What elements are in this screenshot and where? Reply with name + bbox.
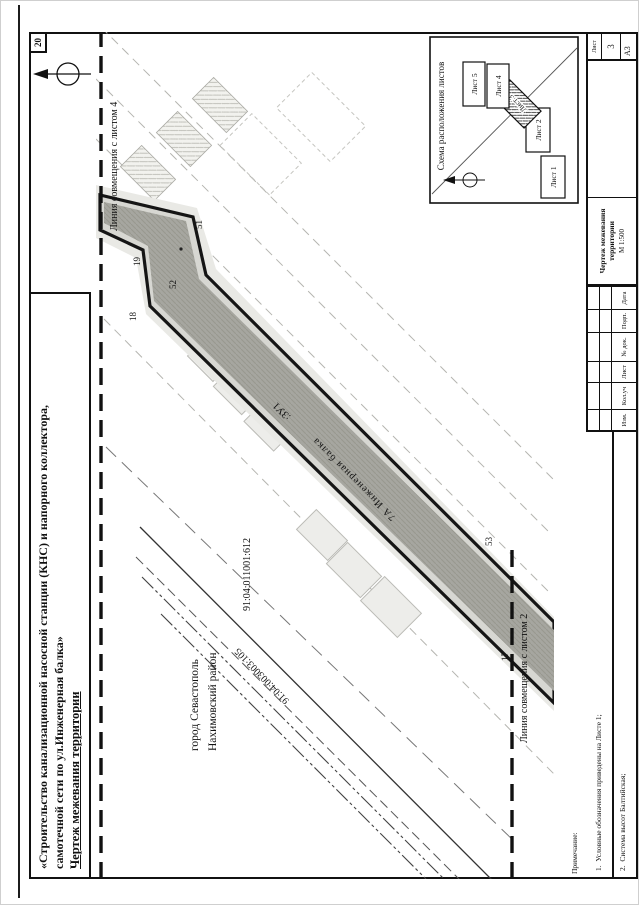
project-title-line1: «Строительство канализационной насосной …: [35, 302, 51, 869]
note-item-2: 2. Система высот Балтийская;: [619, 584, 627, 874]
stamp-document-title-cell: Чертеж межевания территории М 1:500: [588, 198, 636, 286]
lower-field-line: [612, 432, 614, 879]
point-19: 19: [132, 257, 142, 267]
title-block-stamp: Изм. Кол.уч Лист № док. Подп. Дата Черте…: [586, 32, 638, 432]
background-parcels: [220, 72, 366, 195]
notes-heading: Примечание:: [571, 584, 579, 874]
point-17: 17: [500, 652, 510, 662]
stamp-col-ndok: № док.: [612, 332, 636, 361]
match-line-sheet2-label: Линия совмещения с листом 2: [519, 614, 530, 743]
notes-block: Примечание: 1. Условные обозначения прив…: [555, 584, 639, 874]
north-arrow-icon: [31, 52, 95, 96]
note-item-1: 1. Условные обозначения приведены на Лис…: [595, 584, 603, 874]
drawing-title: Чертеж межевания территории: [67, 302, 83, 869]
stamp-col-koluch: Кол.уч: [612, 382, 636, 409]
stamp-col-data: Дата: [612, 286, 636, 309]
paper-edge-line: [18, 5, 20, 898]
scheme-sheet4-label: Лист 4: [494, 75, 503, 97]
project-title-line2: самотечной сети по ул.Инженерная балка»: [51, 302, 67, 869]
scheme-sheet1-label: Лист 1: [549, 166, 558, 188]
drawing-sheet: «Строительство канализационной насосной …: [0, 0, 639, 905]
scheme-sheet5-label: Лист 5: [470, 73, 479, 95]
point-51: 51: [194, 220, 204, 229]
stamp-scale: М 1:500: [618, 229, 626, 253]
point-53: 53: [484, 537, 494, 547]
stamp-revision-grid: Изм. Кол.уч Лист № док. Подп. Дата: [588, 286, 636, 430]
stamp-col-list: Лист: [612, 361, 636, 382]
cadastral-number-right: 91:04:011001:612: [242, 538, 253, 611]
stamp-empty-cell: [588, 61, 636, 198]
point-18: 18: [128, 312, 138, 322]
city-label-line1: город Севастополь: [189, 659, 201, 751]
stamp-col-podp: Подп.: [612, 309, 636, 332]
point-52: 52: [168, 280, 178, 289]
stamp-sheet-label: Лист: [588, 34, 602, 59]
sheet-layout-scheme: Схема расположения листов Лист 1 Лист 2 …: [429, 36, 579, 204]
scanned-drawing-page: «Строительство канализационной насосной …: [0, 0, 639, 905]
road-and-boundary-lines: [106, 447, 516, 879]
scheme-sheet2-label: Лист 2: [534, 119, 543, 141]
city-label-line2: Нахимовский район: [207, 653, 219, 752]
scheme-title: Схема расположения листов: [436, 62, 446, 171]
corner-number-box: 20: [29, 32, 47, 53]
project-title-banner: «Строительство канализационной насосной …: [29, 292, 91, 879]
stamp-col-izm: Изм.: [612, 409, 636, 430]
stamp-document-title: Чертеж межевания территории: [598, 198, 616, 284]
match-line-sheet4-label: Линия совмещения с листом 4: [109, 102, 120, 231]
format-label: А3: [623, 46, 632, 56]
survey-point: [179, 247, 182, 250]
hatched-parcels: [120, 77, 247, 200]
stamp-sheet-number: 3: [602, 34, 621, 59]
